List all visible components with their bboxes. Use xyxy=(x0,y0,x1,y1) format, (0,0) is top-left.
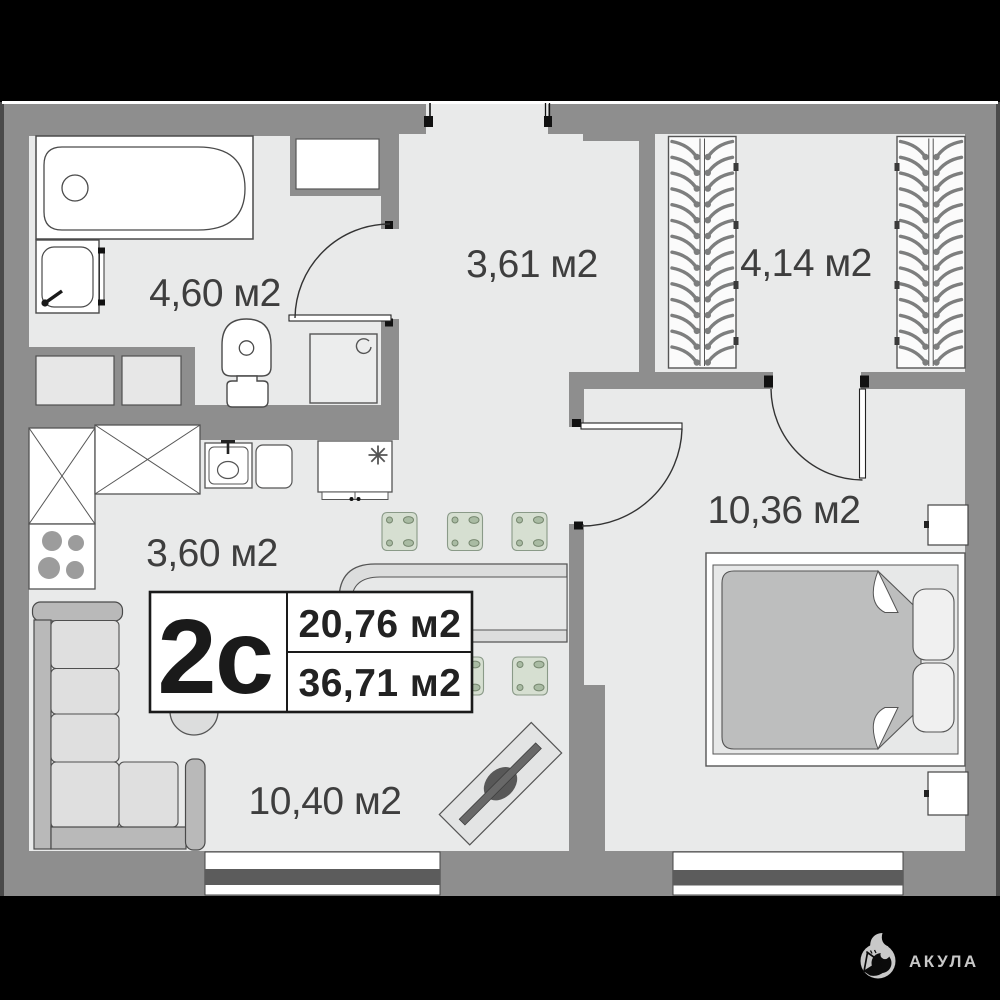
svg-text:10,40 м2: 10,40 м2 xyxy=(249,780,402,823)
svg-text:4,60 м2: 4,60 м2 xyxy=(149,272,281,315)
svg-text:2с: 2с xyxy=(158,598,273,716)
svg-text:3,60 м2: 3,60 м2 xyxy=(146,532,278,575)
svg-text:20,76 м2: 20,76 м2 xyxy=(299,603,462,646)
svg-text:10,36 м2: 10,36 м2 xyxy=(708,489,861,532)
svg-text:3,61 м2: 3,61 м2 xyxy=(466,243,598,286)
svg-text:4,14 м2: 4,14 м2 xyxy=(740,242,872,285)
svg-text:36,71 м2: 36,71 м2 xyxy=(299,662,462,705)
svg-text:АКУЛА: АКУЛА xyxy=(909,952,979,971)
